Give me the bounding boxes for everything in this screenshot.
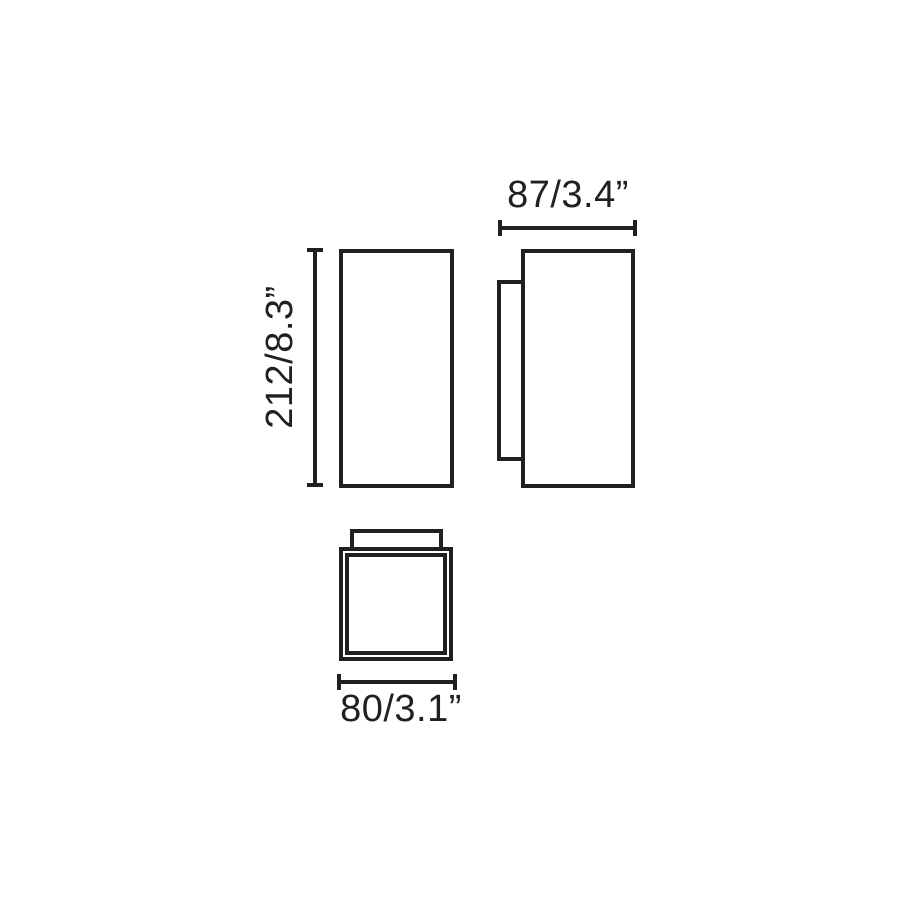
depth-dimension-tick-right (633, 220, 637, 236)
depth-dimension-label: 87/3.4” (507, 176, 629, 214)
height-dimension-label: 212/8.3” (261, 285, 299, 428)
height-dimension-line (313, 250, 317, 487)
front-view-body (339, 249, 454, 488)
width-dimension-label: 80/3.1” (340, 690, 462, 728)
height-dimension-tick-bottom (307, 483, 323, 487)
side-view-body (521, 249, 635, 488)
depth-dimension-tick-left (498, 220, 502, 236)
height-dimension-tick-top (307, 248, 323, 252)
depth-dimension-line (500, 226, 635, 230)
width-dimension-line (339, 680, 455, 684)
technical-drawing: 212/8.3” 87/3.4” 80/3.1” (0, 0, 900, 900)
bottom-view-inner-square (345, 553, 447, 655)
